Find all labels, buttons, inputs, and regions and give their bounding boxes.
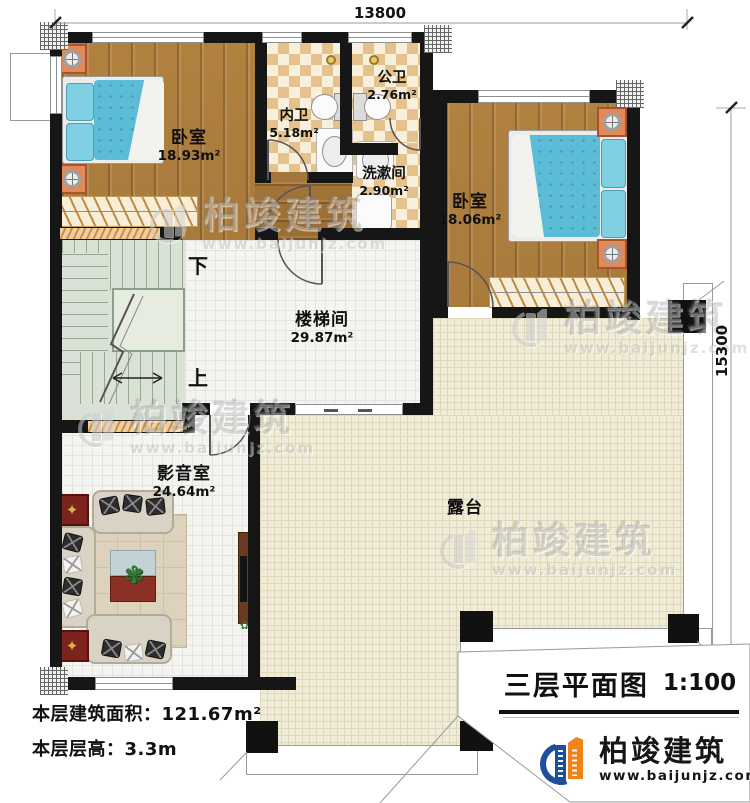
stair-down-label: 下: [188, 250, 208, 279]
wall: [50, 677, 296, 690]
wall: [318, 228, 433, 240]
logo-building-orange-icon: [568, 737, 583, 779]
floor-area-label: 本层建筑面积：: [32, 704, 162, 725]
lamp-icon: [63, 170, 81, 188]
room-name: 楼梯间: [280, 310, 364, 330]
room-name: 露台: [428, 498, 502, 518]
floor-area-value: 121.67m²: [162, 704, 262, 725]
bed-pillow: [66, 123, 94, 161]
window: [262, 32, 302, 43]
stair-landing: [112, 288, 185, 352]
room-label-stair-hall: 楼梯间 29.87m²: [280, 310, 364, 347]
terrace-column: [668, 614, 699, 643]
wall: [627, 90, 640, 320]
wall: [250, 403, 295, 415]
room-name: 影音室: [140, 464, 228, 484]
nightstand: [597, 107, 627, 137]
room-name: 内卫: [262, 108, 326, 125]
brand-logo: 柏竣建筑 www.baijunjz.com: [540, 728, 748, 792]
stair-flight-bottom: [80, 352, 185, 404]
room-label-bedroom2: 卧室 18.06m²: [428, 192, 512, 229]
nightstand: [597, 239, 627, 269]
corner-hatch: [40, 667, 68, 695]
terrace-column: [460, 721, 493, 751]
plant-icon: ✾: [119, 560, 149, 590]
terrace-column: [668, 300, 706, 333]
room-label-terrace: 露台: [428, 498, 502, 518]
window: [92, 32, 204, 43]
room-area: 2.90m²: [346, 183, 422, 198]
wall: [255, 172, 271, 183]
room-area: 18.06m²: [428, 212, 512, 228]
title-block: 三层平面图 1:100: [495, 660, 745, 706]
room-label-bedroom1: 卧室 18.93m²: [147, 128, 231, 165]
lamp-icon: [603, 113, 621, 131]
room-area: 2.76m²: [360, 87, 424, 102]
bed-pillow: [601, 139, 626, 188]
closet: [59, 196, 198, 227]
plan-title: 三层平面图: [504, 664, 649, 703]
window: [478, 90, 590, 103]
wall: [255, 228, 278, 240]
terrace-column: [460, 611, 493, 642]
sofa-pillow: [144, 639, 166, 660]
title-rule-thin: [503, 717, 739, 718]
sliding-door-handle: [358, 409, 372, 412]
room-area: 29.87m²: [280, 330, 364, 346]
corner-hatch: [40, 22, 68, 50]
corner-hatch: [616, 80, 644, 108]
sofa-pillow: [123, 643, 144, 662]
floor-height-note: 本层层高：3.3m: [32, 735, 262, 761]
room-area: 5.18m²: [262, 125, 326, 140]
bed-pillow: [66, 83, 94, 121]
brand-name: 柏竣建筑: [599, 737, 750, 766]
wall: [340, 43, 352, 143]
wall: [340, 143, 398, 155]
brand-logo-icon: [540, 731, 592, 789]
stair-up-label: 上: [188, 362, 208, 391]
shower-head-icon: [369, 55, 379, 65]
terrace-floor-upper: [433, 318, 683, 418]
wall: [248, 415, 260, 677]
floor-height-label: 本层层高：: [32, 739, 125, 760]
shower-head-icon: [326, 55, 336, 65]
wall: [403, 403, 433, 415]
corner-hatch: [424, 25, 452, 53]
room-area: 24.64m²: [140, 484, 228, 500]
window: [348, 32, 412, 43]
floor-height-value: 3.3m: [125, 739, 178, 760]
room-name: 洗漱间: [346, 166, 422, 183]
window: [50, 56, 62, 114]
sliding-door: [295, 404, 403, 415]
wall-lintel-hatch: [60, 228, 160, 239]
room-label-media-room: 影音室 24.64m²: [140, 464, 228, 501]
wall: [433, 307, 448, 318]
logo-building-blue-icon: [555, 745, 566, 779]
floor-plan-canvas: ✦ ✦ ✾ ✿: [0, 0, 750, 803]
room-name: 公卫: [360, 70, 424, 87]
sofa-pillow: [62, 576, 84, 596]
tv-screen: [240, 556, 247, 602]
sofa-pillow: [62, 554, 84, 574]
bed-pillow: [601, 190, 626, 238]
terrace-walkway-right: [683, 283, 713, 667]
room-label-washroom: 洗漱间 2.90m²: [346, 166, 422, 198]
lamp-icon: [603, 245, 621, 263]
floor-notes: 本层建筑面积：121.67m² 本层层高：3.3m: [32, 700, 262, 770]
room-name: 卧室: [428, 192, 512, 212]
terrace-floor-main: [260, 415, 683, 630]
title-rule: [499, 710, 739, 714]
washing-machine: [356, 194, 392, 230]
sofa-pillow: [101, 638, 123, 658]
window: [95, 677, 173, 690]
closet: [489, 277, 625, 308]
wall: [50, 32, 62, 690]
wall: [492, 307, 640, 318]
dimension-top: 13800: [345, 4, 415, 22]
room-area: 18.93m²: [147, 148, 231, 164]
room-label-public-bath: 公卫 2.76m²: [360, 70, 424, 102]
wall-lintel-hatch: [88, 421, 183, 432]
brand-website: www.baijunjz.com: [599, 769, 750, 784]
sliding-door-handle: [324, 409, 338, 412]
terrace-walkway-lower: [246, 745, 478, 775]
room-label-inner-bath: 内卫 5.18m²: [262, 108, 326, 140]
dimension-right: 15300: [713, 311, 731, 391]
floor-area-note: 本层建筑面积：121.67m²: [32, 700, 262, 726]
plan-scale: 1:100: [663, 670, 736, 696]
room-name: 卧室: [147, 128, 231, 148]
lamp-icon: [63, 50, 81, 68]
wall: [185, 403, 210, 415]
